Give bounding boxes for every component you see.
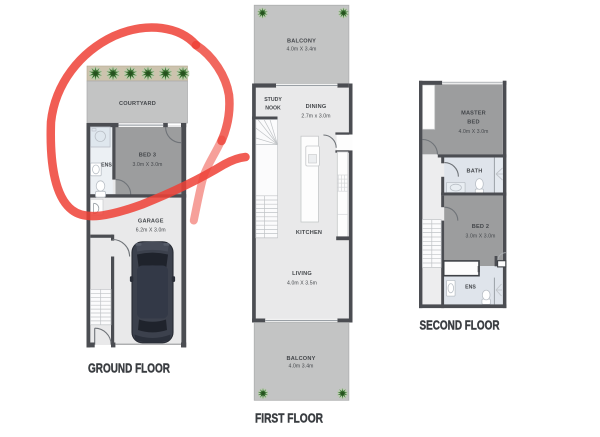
svg-text:GARAGE: GARAGE: [138, 219, 164, 225]
svg-text:6.2m X 3.0m: 6.2m X 3.0m: [136, 228, 166, 234]
svg-text:SECOND FLOOR: SECOND FLOOR: [420, 319, 500, 333]
svg-text:FIRST FLOOR: FIRST FLOOR: [255, 412, 323, 426]
svg-text:BALCONY: BALCONY: [286, 356, 315, 362]
svg-text:ENS: ENS: [465, 285, 476, 291]
svg-text:4.0m X 3.5m: 4.0m X 3.5m: [287, 281, 317, 287]
svg-text:4.0m X 3.0m: 4.0m X 3.0m: [459, 129, 489, 135]
svg-text:COURTYARD: COURTYARD: [119, 101, 156, 107]
svg-text:3.0m X 3.0m: 3.0m X 3.0m: [466, 234, 496, 240]
svg-text:BED 2: BED 2: [472, 224, 489, 230]
svg-text:GROUND FLOOR: GROUND FLOOR: [88, 362, 170, 376]
svg-text:4.0m X 3.4m: 4.0m X 3.4m: [287, 47, 317, 53]
svg-text:KITCHEN: KITCHEN: [296, 230, 322, 236]
svg-text:4.0m 3.4m: 4.0m 3.4m: [289, 364, 314, 370]
svg-text:BALCONY: BALCONY: [287, 39, 316, 45]
svg-text:MASTER: MASTER: [461, 111, 486, 117]
svg-text:BED 3: BED 3: [139, 153, 156, 159]
svg-text:DINING: DINING: [306, 104, 327, 110]
svg-text:BATH: BATH: [467, 169, 483, 175]
svg-text:3.0m X 3.0m: 3.0m X 3.0m: [133, 162, 163, 168]
svg-text:2.7m x 3.0m: 2.7m x 3.0m: [301, 114, 330, 120]
svg-text:LIVING: LIVING: [292, 271, 312, 277]
svg-text:STUDY: STUDY: [264, 97, 282, 103]
svg-text:NOOK: NOOK: [265, 106, 281, 112]
svg-text:ENS: ENS: [101, 163, 112, 169]
svg-text:BED: BED: [467, 120, 479, 126]
